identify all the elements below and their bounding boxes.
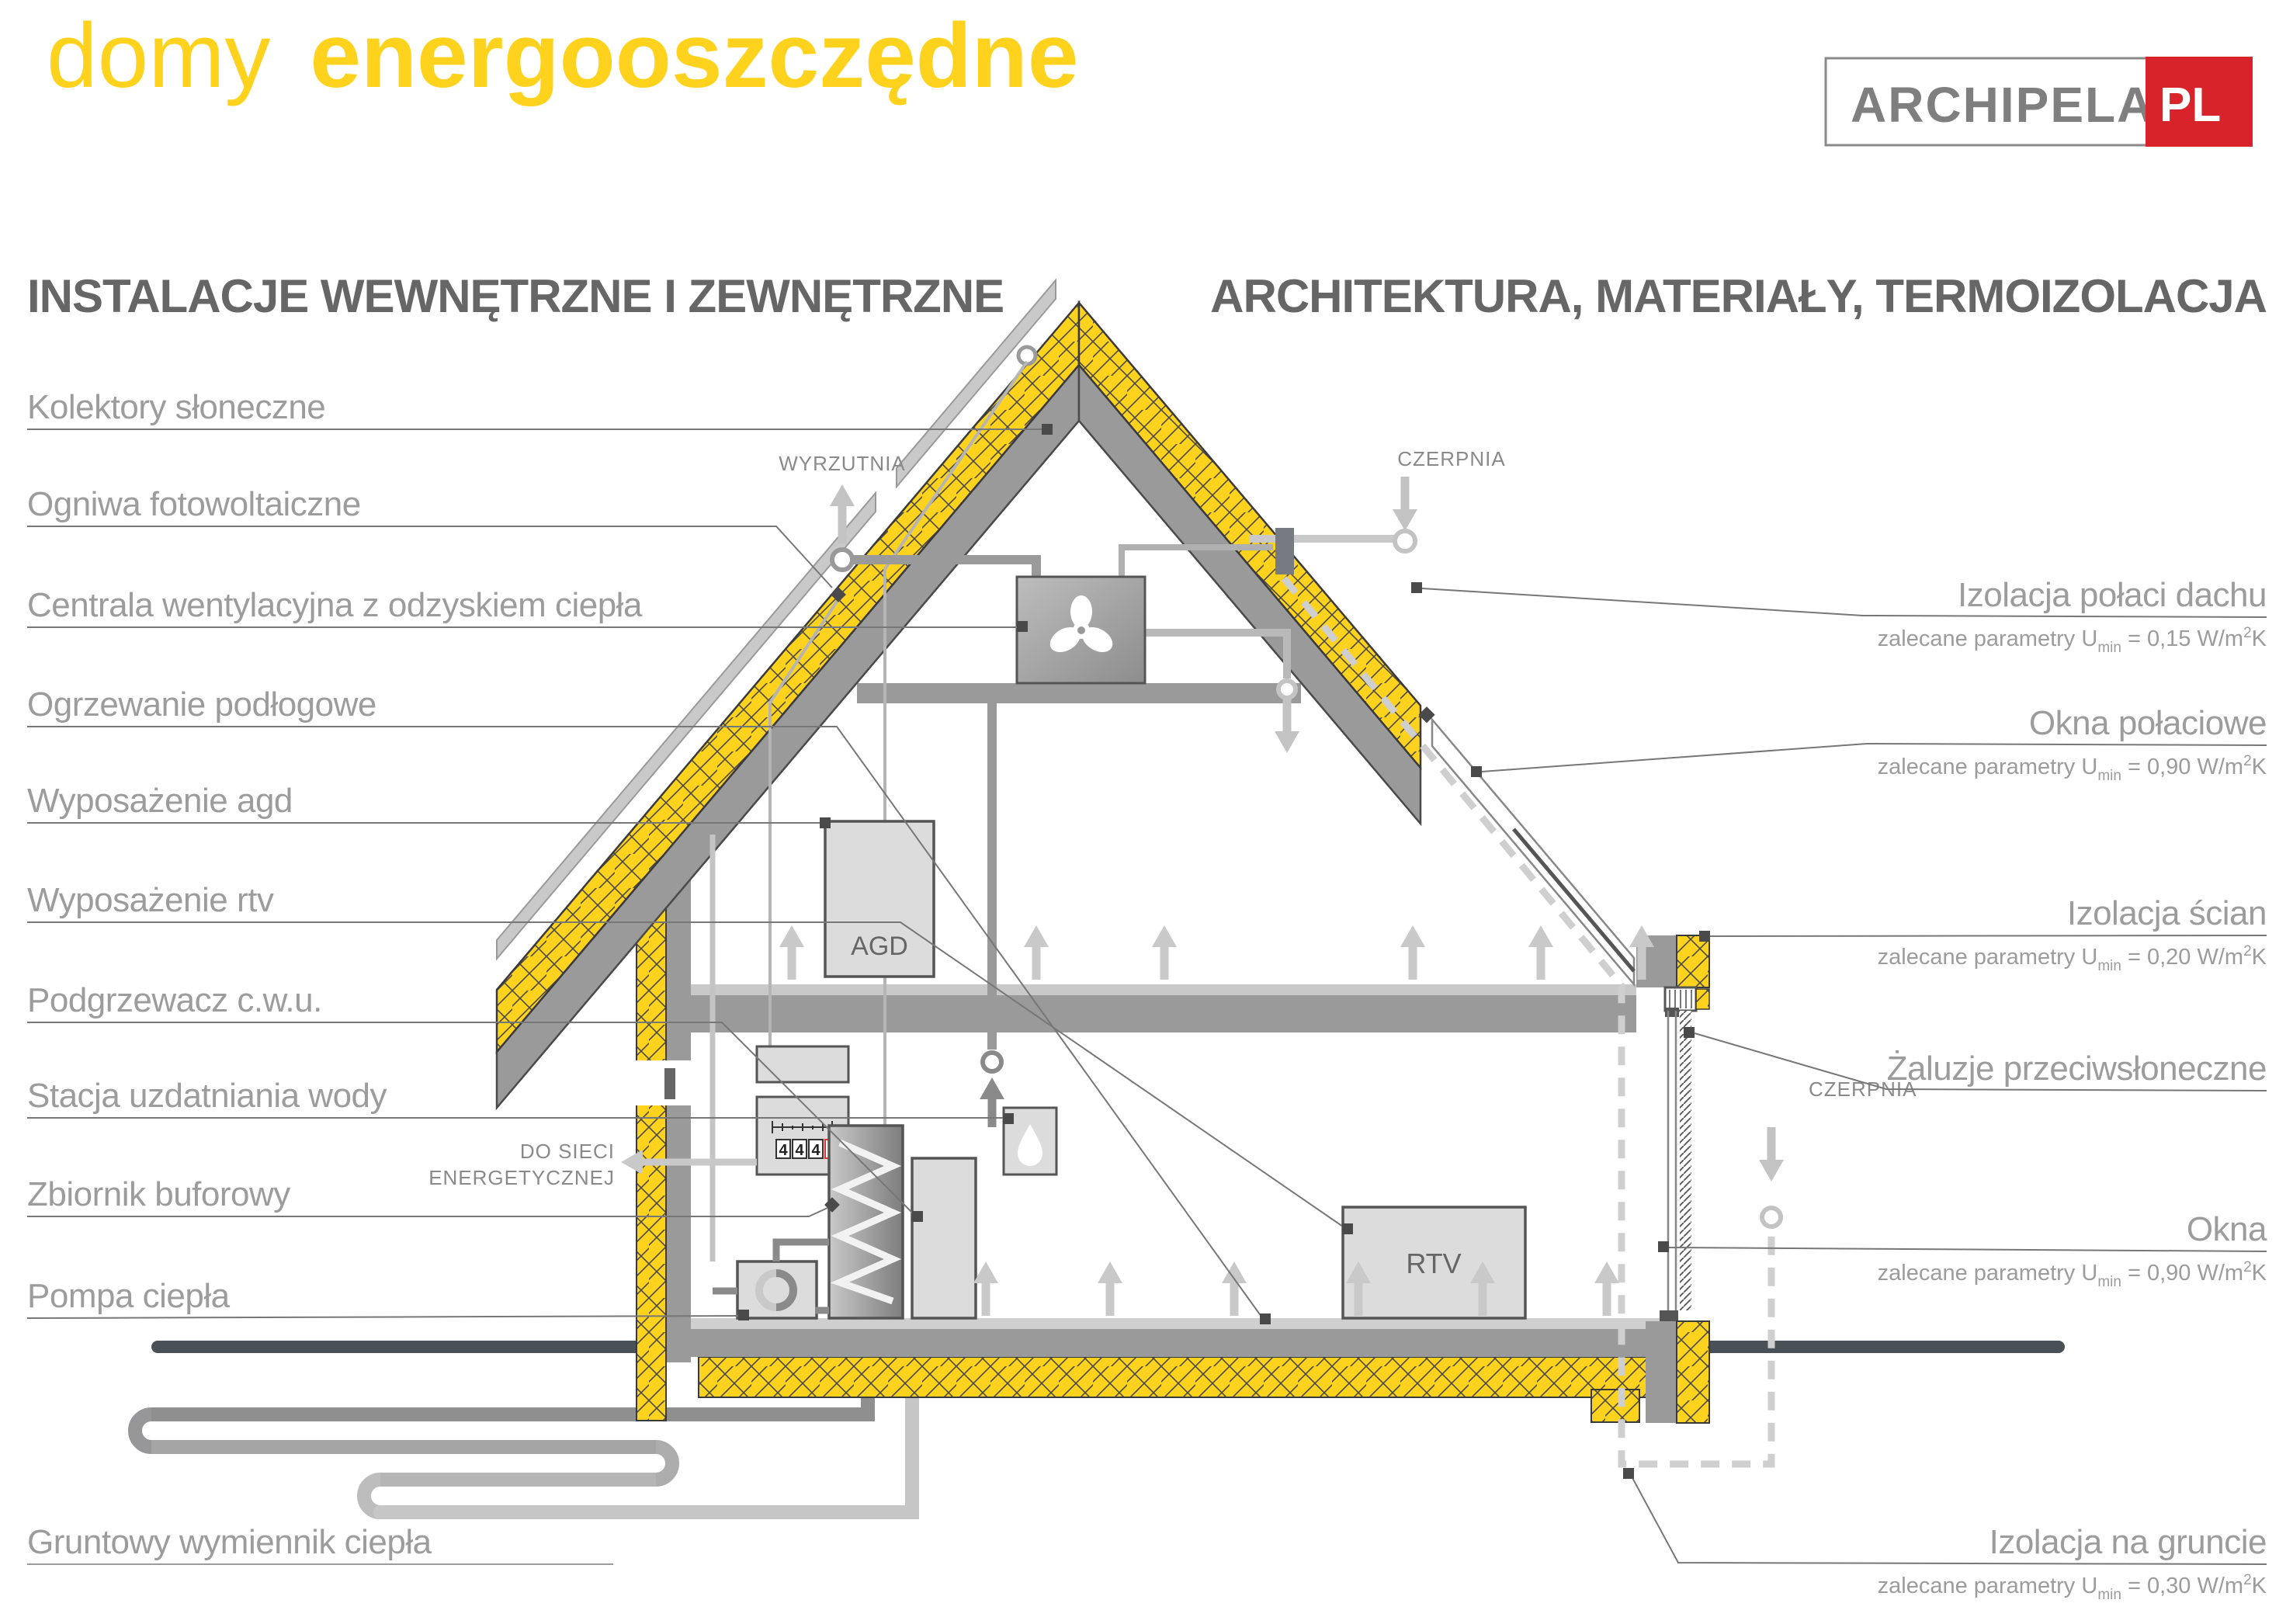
czerpnia-ground-arrow-icon	[1759, 1127, 1784, 1182]
grid-label-line1: DO SIECI	[520, 1140, 615, 1163]
agd-appliance: AGD	[825, 821, 934, 977]
meter-digit: 4	[779, 1142, 788, 1159]
label-ogniwa: Ogniwa fotowoltaiczne	[27, 485, 361, 523]
buffer-tank	[829, 1126, 903, 1318]
czerpnia-roof-inlet	[1395, 531, 1415, 551]
title-light: domy	[47, 5, 271, 107]
title-bold: energooszczędne	[310, 5, 1078, 107]
archipelag-logo: ARCHIPELAG PL	[1826, 57, 2253, 147]
marker-izolacja-gruncie	[1623, 1468, 1634, 1479]
logo-tld: PL	[2159, 78, 2221, 132]
wyrzutnia-outlet	[832, 550, 852, 570]
label-kolektory: Kolektory słoneczne	[27, 388, 325, 426]
rtv-appliance: RTV	[1343, 1207, 1525, 1318]
roof-window-frame-line	[1514, 829, 1634, 971]
right-lower-wall	[1646, 1321, 1677, 1423]
window-top-frame	[1665, 1008, 1679, 1017]
agd-label: AGD	[851, 932, 908, 961]
roof-windows	[1418, 706, 1634, 984]
marker-izolacja-scian	[1699, 931, 1710, 942]
label-agd: Wyposażenie agd	[27, 782, 293, 820]
upper-floor-screed	[691, 984, 1636, 995]
floor-slab	[668, 1329, 1677, 1357]
grid-export-arrow-icon	[621, 1150, 643, 1175]
czerpnia-ground-annotation: CZERPNIA	[1759, 1077, 1917, 1227]
marker-okna	[1658, 1241, 1669, 1252]
marker-pompa	[738, 1310, 749, 1320]
marker-zaluzje	[1684, 1027, 1695, 1038]
wyrzutnia-label: WYRZUTNIA	[779, 452, 906, 475]
floor-screed	[668, 1318, 1677, 1329]
label-zaluzje: Żaluzje przeciwsłoneczne	[1887, 1050, 2267, 1088]
param-izolacja-scian: zalecane parametry Umin = 0,20 W/m2K	[1878, 943, 2267, 974]
czerpnia-ground-inlet	[1762, 1208, 1781, 1227]
foundation-insulation-block	[1591, 1390, 1639, 1422]
marker-stacja	[1003, 1113, 1014, 1124]
inverter-box	[757, 1046, 848, 1082]
label-izolacja-gruncie: Izolacja na gruncie	[1989, 1523, 2267, 1561]
attic-collar-ceiling	[857, 683, 1301, 703]
marker-izolacja-dachu	[1411, 582, 1422, 593]
right-wall-insulation-top	[1677, 935, 1709, 987]
ventilation-unit	[1017, 577, 1145, 683]
label-okna-polaciowe: Okna połaciowe	[2029, 704, 2267, 742]
dhw-heater-tank	[912, 1158, 976, 1318]
czerpnia-roof-annotation: CZERPNIA	[1393, 447, 1506, 551]
meter-digit: 4	[811, 1142, 820, 1159]
page-title: domy energooszczędne	[47, 5, 1079, 107]
attic-vent-outlet	[1278, 681, 1296, 698]
collector-pipe-outlet	[1018, 347, 1035, 364]
label-stacja: Stacja uzdatniania wody	[27, 1077, 387, 1115]
label-okna: Okna	[2187, 1210, 2267, 1248]
label-izolacja-scian: Izolacja ścian	[2067, 894, 2267, 932]
section-header-left: INSTALACJE WEWNĘTRZNE I ZEWNĘTRZNE	[27, 270, 1004, 322]
logo-text: ARCHIPELAG	[1851, 77, 2194, 133]
marker-rtv	[1342, 1223, 1353, 1234]
heat-pump	[737, 1261, 817, 1318]
label-ogrzewanie: Ogrzewanie podłogowe	[27, 685, 376, 724]
floor-insulation	[699, 1357, 1677, 1397]
czerpnia-roof-label: CZERPNIA	[1397, 447, 1505, 470]
ground-line-right	[1704, 1341, 2065, 1353]
label-centrala: Centrala wentylacyjna z odzyskiem ciepła	[27, 586, 643, 624]
param-okna-polaciowe: zalecane parametry Umin = 0,90 W/m2K	[1878, 753, 2267, 784]
window-sill	[1660, 1310, 1678, 1321]
label-podgrzewacz: Podgrzewacz c.w.u.	[27, 981, 322, 1019]
label-gruntowy: Gruntowy wymiennik ciepła	[27, 1523, 432, 1561]
marker-centrala	[1017, 621, 1028, 632]
upper-floor-slab	[691, 995, 1636, 1032]
marker-podgrzewacz	[912, 1211, 923, 1222]
param-izolacja-gruncie: zalecane parametry Umin = 0,30 W/m2K	[1878, 1572, 2267, 1603]
left-wall-window-frame	[664, 1068, 675, 1099]
right-wall-insulation-bottom	[1677, 1321, 1709, 1423]
label-izolacja-dachu: Izolacja połaci dachu	[1958, 576, 2267, 614]
intake-damper	[1275, 528, 1294, 574]
param-okna: zalecane parametry Umin = 0,90 W/m2K	[1878, 1259, 2267, 1290]
blind-box-insulation	[1696, 989, 1709, 1009]
czerpnia-roof-arrow-icon	[1393, 477, 1417, 531]
meter-digit: 4	[795, 1142, 804, 1159]
grid-label-line2: ENERGETYCZNEJ	[428, 1166, 615, 1189]
attic-supply-arrow-icon	[1275, 699, 1299, 753]
label-pompa: Pompa ciepła	[27, 1277, 231, 1315]
infographic-canvas: domy energooszczędne ARCHIPELAG PL INSTA…	[0, 0, 2293, 1624]
window-sun-blind	[1680, 1011, 1691, 1310]
extract-vent-inlet	[983, 1053, 1001, 1071]
section-header-right: ARCHITEKTURA, MATERIAŁY, TERMOIZOLACJA	[1210, 270, 2267, 322]
marker-agd	[820, 817, 831, 828]
grid-export-annotation: DO SIECI ENERGETYCZNEJ	[428, 1140, 757, 1189]
param-izolacja-dachu: zalecane parametry Umin = 0,15 W/m2K	[1878, 625, 2267, 656]
marker-okna-polaciowe	[1471, 766, 1482, 777]
right-wall	[1636, 935, 1709, 1423]
extract-arrow-icon	[980, 1077, 1004, 1127]
label-rtv: Wyposażenie rtv	[27, 881, 274, 919]
label-zbiornik: Zbiornik buforowy	[27, 1175, 290, 1213]
marker-kolektory	[1042, 424, 1053, 435]
marker-ogrzewanie	[1260, 1313, 1271, 1324]
rtv-label: RTV	[1406, 1247, 1461, 1279]
ground-line-left	[151, 1341, 660, 1353]
